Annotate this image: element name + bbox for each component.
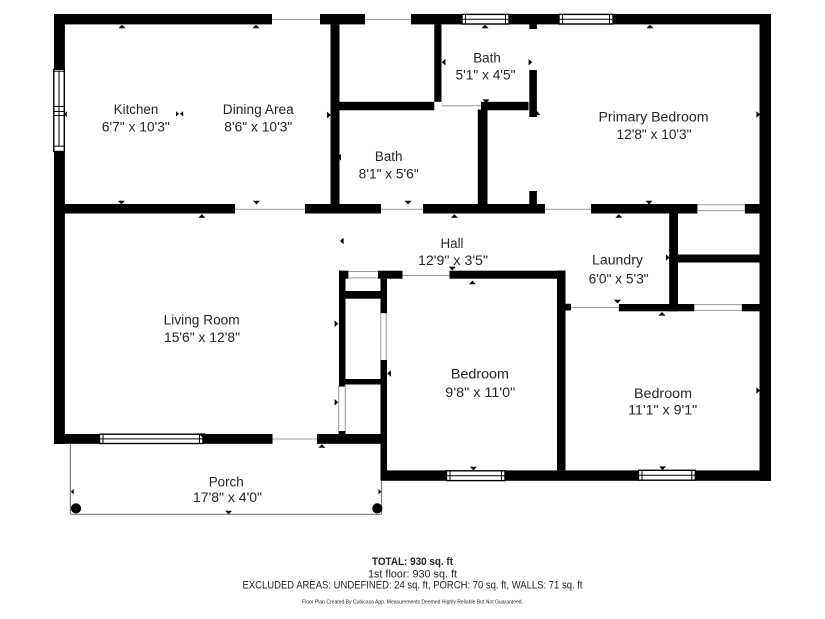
svg-text:12'8" x 10'3": 12'8" x 10'3" bbox=[617, 127, 692, 142]
svg-text:6'0" x 5'3": 6'0" x 5'3" bbox=[589, 271, 649, 286]
svg-text:Bedroom: Bedroom bbox=[451, 366, 509, 381]
svg-text:Bath: Bath bbox=[375, 149, 403, 164]
svg-text:Primary Bedroom: Primary Bedroom bbox=[599, 110, 709, 125]
svg-text:6'7" x 10'3": 6'7" x 10'3" bbox=[102, 119, 170, 134]
svg-text:Bedroom: Bedroom bbox=[634, 386, 692, 401]
svg-text:8'6" x 10'3": 8'6" x 10'3" bbox=[224, 119, 292, 134]
svg-text:11'1" x 9'1": 11'1" x 9'1" bbox=[628, 402, 697, 417]
svg-text:1st floor: 930 sq. ft: 1st floor: 930 sq. ft bbox=[368, 568, 457, 580]
svg-text:5'1" x 4'5": 5'1" x 4'5" bbox=[456, 67, 516, 82]
svg-text:Hall: Hall bbox=[440, 236, 463, 251]
svg-text:Kitchen: Kitchen bbox=[114, 102, 159, 117]
svg-text:9'8" x 11'0": 9'8" x 11'0" bbox=[445, 385, 515, 400]
svg-text:Floor Plan Created By Cubicasa: Floor Plan Created By Cubicasa App. Meas… bbox=[302, 599, 523, 605]
svg-text:EXCLUDED AREAS: UNDEFINED: 24: EXCLUDED AREAS: UNDEFINED: 24 sq. ft, PO… bbox=[243, 580, 583, 592]
svg-text:Bath: Bath bbox=[473, 50, 501, 65]
svg-text:Laundry: Laundry bbox=[592, 253, 643, 268]
svg-text:Porch: Porch bbox=[209, 475, 244, 490]
svg-text:17'8" x 4'0": 17'8" x 4'0" bbox=[193, 490, 262, 505]
svg-text:Dining Area: Dining Area bbox=[223, 102, 295, 117]
svg-text:12'9" x 3'5": 12'9" x 3'5" bbox=[418, 253, 488, 268]
svg-text:Living Room: Living Room bbox=[164, 312, 240, 327]
svg-text:15'6" x 12'8": 15'6" x 12'8" bbox=[164, 330, 240, 345]
svg-text:8'1" x 5'6": 8'1" x 5'6" bbox=[359, 167, 419, 182]
svg-text:TOTAL: 930 sq. ft: TOTAL: 930 sq. ft bbox=[372, 556, 453, 568]
